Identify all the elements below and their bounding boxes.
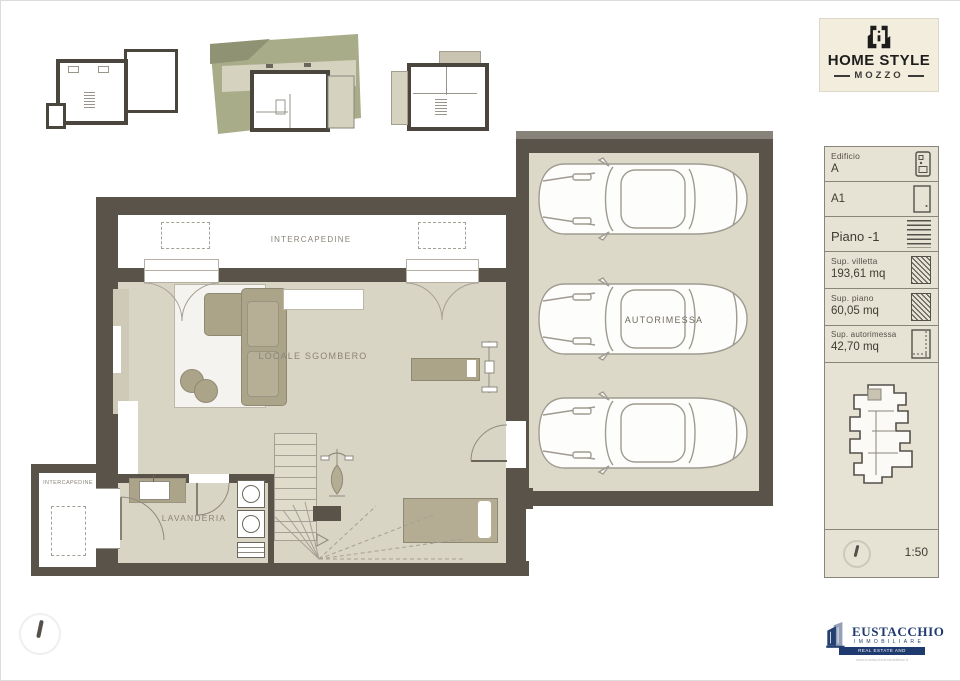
row-sup-piano: Sup. piano 60,05 mq bbox=[825, 289, 938, 326]
agency-name: EUSTACCHIO bbox=[852, 624, 944, 640]
side-room-opening bbox=[96, 488, 120, 549]
row-unit: A1 bbox=[825, 182, 938, 217]
row-floor: Piano -1 bbox=[825, 217, 938, 252]
hatched-area-icon bbox=[911, 256, 931, 284]
west-passage bbox=[118, 401, 138, 474]
lavanderia-door-opening bbox=[189, 474, 229, 483]
stair-wall-stub bbox=[313, 506, 341, 521]
door-icon bbox=[913, 185, 931, 213]
row-sup-villetta: Sup. villetta 193,61 mq bbox=[825, 252, 938, 289]
agency-building-icon bbox=[825, 622, 849, 650]
brand-city: MOZZO bbox=[820, 70, 938, 81]
garage-door-opening bbox=[506, 421, 526, 468]
staircase-flight bbox=[274, 433, 317, 541]
garage-top-wall bbox=[516, 139, 773, 153]
car-3 bbox=[539, 392, 747, 474]
label-autorimessa: AUTORIMESSA bbox=[604, 315, 724, 325]
house-top-wall bbox=[96, 197, 529, 215]
thumbnail-basement-plan bbox=[46, 46, 176, 136]
agency-logo: EUSTACCHIO IMMOBILIARE REAL ESTATE AND I… bbox=[821, 616, 949, 674]
side-room-well bbox=[51, 506, 86, 556]
window-left bbox=[144, 259, 219, 283]
laundry-sink bbox=[139, 481, 170, 500]
scale-compass-icon bbox=[843, 540, 871, 568]
laundry-shelf bbox=[237, 542, 265, 558]
label-intercapedine-top: INTERCAPEDINE bbox=[231, 235, 391, 244]
building-icon bbox=[915, 151, 931, 177]
row-sup-autorimessa: Sup. autorimessa 42,70 mq bbox=[825, 326, 938, 363]
daybed-pillow bbox=[478, 501, 491, 538]
dryer-drum bbox=[242, 515, 260, 533]
label-lavanderia: LAVANDERIA bbox=[149, 513, 239, 523]
garage-bottom-wall bbox=[516, 491, 773, 506]
window-well-right bbox=[418, 222, 466, 249]
house-bottom-wall bbox=[31, 561, 529, 576]
scale-value: 1:50 bbox=[905, 545, 928, 559]
car-1 bbox=[539, 158, 747, 240]
floor-lines-icon bbox=[907, 220, 931, 248]
agency-website: www.eustacchioimmobiliare.it bbox=[839, 657, 925, 662]
label-locale-sgombero: LOCALE SGOMBERO bbox=[233, 351, 393, 361]
bench-pad bbox=[467, 360, 476, 377]
pouf bbox=[194, 379, 218, 403]
wall-junction-stub bbox=[506, 488, 533, 509]
homestyle-monogram-icon bbox=[866, 24, 892, 50]
left-wall-slit bbox=[113, 326, 121, 373]
info-panel: Edificio A A1 Piano -1 bbox=[824, 146, 939, 578]
brand-name: HOME STYLE bbox=[820, 52, 938, 69]
row-edificio: Edificio A bbox=[825, 147, 938, 182]
sink-faucet bbox=[153, 475, 154, 482]
scale-cell: 1:50 bbox=[825, 530, 938, 576]
thumbnail-first-floor-plan bbox=[391, 49, 496, 133]
sideboard bbox=[283, 289, 364, 310]
sofa-cushion bbox=[247, 301, 279, 347]
agency-banner: REAL ESTATE AND INVESTMENTS bbox=[839, 647, 925, 655]
label-intercapedine-side: INTERCAPEDINE bbox=[40, 480, 96, 486]
window-well-left bbox=[161, 222, 210, 249]
brand-logo-box: HOME STYLE MOZZO bbox=[819, 18, 939, 92]
agency-subtitle: IMMOBILIARE bbox=[854, 639, 924, 645]
floor-plan-sheet: INTERCAPEDINE LOCALE SGOMBERO LAVANDERIA… bbox=[0, 0, 960, 681]
site-plan-diagram bbox=[842, 381, 922, 499]
garage-right-wall bbox=[759, 139, 773, 506]
hatched-area-icon bbox=[911, 293, 931, 321]
thumbnail-ground-floor-plan bbox=[208, 34, 361, 136]
site-plan-cell bbox=[825, 363, 938, 530]
garage-area-icon bbox=[911, 329, 931, 359]
garage-outer-strip bbox=[516, 131, 773, 139]
compass-icon bbox=[19, 613, 61, 655]
window-right bbox=[406, 259, 479, 283]
washer-drum bbox=[242, 485, 260, 503]
